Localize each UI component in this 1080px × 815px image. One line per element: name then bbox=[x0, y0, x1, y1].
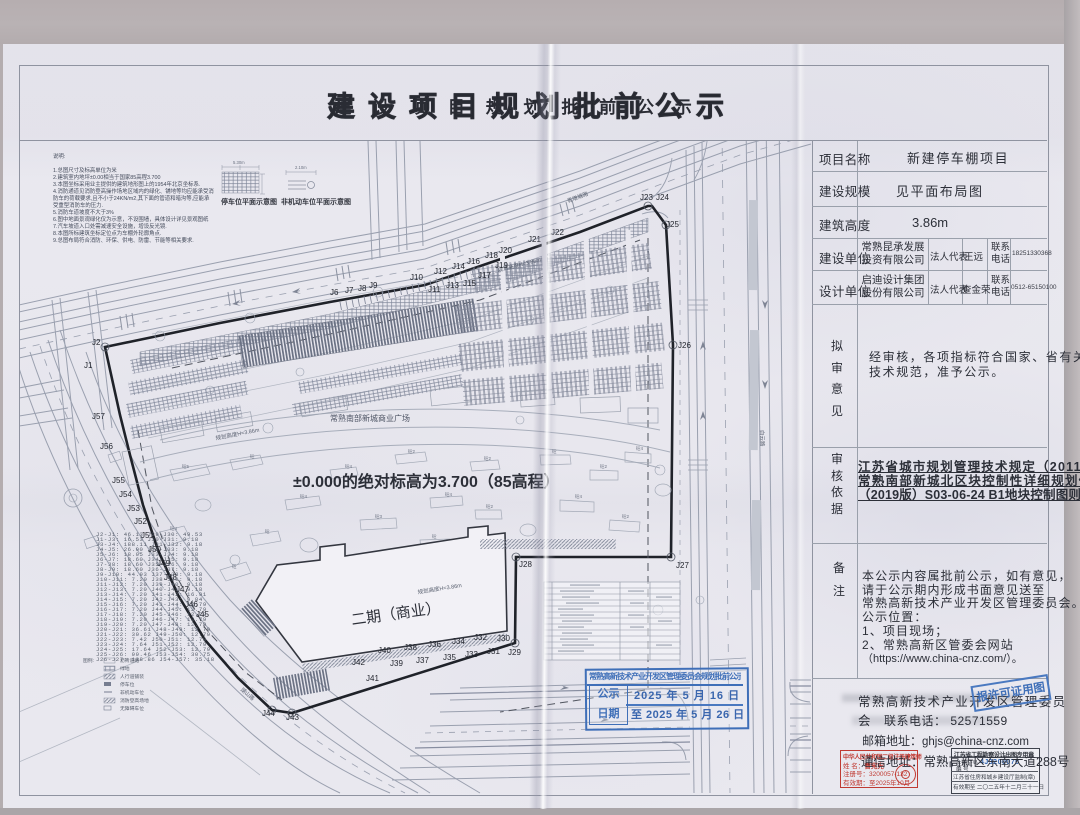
svg-text:J53: J53 bbox=[127, 504, 140, 513]
svg-text:J56: J56 bbox=[100, 442, 113, 451]
svg-text:5.消防车道坡度不大于3%: 5.消防车道坡度不大于3% bbox=[53, 208, 114, 216]
svg-text:1.总图尺寸及标高单位为米: 1.总图尺寸及标高单位为米 bbox=[53, 166, 117, 174]
svg-text:J54: J54 bbox=[119, 490, 132, 499]
svg-text:8.本图所标建筑坐标定位点为车棚外轮廓角点.: 8.本图所标建筑坐标定位点为车棚外轮廓角点. bbox=[53, 229, 161, 237]
svg-text:J14: J14 bbox=[452, 262, 465, 271]
svg-text:J35: J35 bbox=[443, 653, 456, 662]
svg-text:J20: J20 bbox=[499, 246, 512, 255]
svg-text:砼2: 砼2 bbox=[408, 448, 415, 454]
svg-text:J24: J24 bbox=[656, 193, 669, 202]
svg-text:J10: J10 bbox=[410, 273, 423, 282]
svg-text:J26-J27: 138.86 J54-J57: 35.18: J26-J27: 138.86 J54-J57: 35.18 bbox=[96, 656, 215, 663]
svg-text:J57: J57 bbox=[92, 412, 105, 421]
svg-text:砼: 砼 bbox=[232, 563, 237, 569]
svg-text:砼2: 砼2 bbox=[486, 503, 493, 509]
svg-text:J27: J27 bbox=[676, 561, 689, 570]
svg-text:J52: J52 bbox=[134, 517, 147, 526]
svg-text:砼4: 砼4 bbox=[445, 491, 452, 497]
svg-text:消防登高场地: 消防登高场地 bbox=[120, 697, 149, 704]
svg-text:砼2: 砼2 bbox=[484, 455, 491, 461]
svg-text:J31: J31 bbox=[487, 647, 500, 656]
svg-text:说明:: 说明: bbox=[53, 152, 65, 160]
svg-text:J30: J30 bbox=[497, 634, 510, 643]
svg-text:4.消防通道见消防登高操作场地区域内的绿化、铺地等均应能承受: 4.消防通道见消防登高操作场地区域内的绿化、铺地等均应能承受消 bbox=[53, 187, 214, 195]
svg-text:6.图中地面景观绿化仅为示意，不设围墙，具体设计详见景观图纸: 6.图中地面景观绿化仅为示意，不设围墙，具体设计详见景观图纸 bbox=[53, 215, 209, 223]
svg-text:5.30m: 5.30m bbox=[233, 160, 245, 165]
svg-text:无障碍车位: 无障碍车位 bbox=[120, 705, 144, 712]
svg-text:J44: J44 bbox=[262, 709, 275, 718]
svg-text:J42: J42 bbox=[352, 658, 365, 667]
svg-text:7.汽车坡道入口处需减速安全设施，增设反光镜.: 7.汽车坡道入口处需减速安全设施，增设反光镜. bbox=[53, 222, 167, 230]
svg-text:砼2: 砼2 bbox=[600, 463, 607, 469]
svg-text:9.总图布局符合消防、环保、供电、防雷、节能等相关要求.: 9.总图布局符合消防、环保、供电、防雷、节能等相关要求. bbox=[53, 236, 194, 244]
svg-text:非机动车位: 非机动车位 bbox=[120, 689, 144, 696]
svg-text:停车位: 停车位 bbox=[120, 681, 135, 688]
svg-text:J18: J18 bbox=[485, 251, 498, 260]
svg-text:砼4: 砼4 bbox=[575, 493, 582, 499]
svg-text:绿地: 绿地 bbox=[120, 665, 130, 672]
svg-text:人行道铺装: 人行道铺装 bbox=[120, 673, 144, 680]
svg-text:J33: J33 bbox=[465, 650, 478, 659]
svg-text:J19: J19 bbox=[495, 261, 508, 270]
svg-text:J41: J41 bbox=[366, 674, 379, 683]
svg-text:常熟南部新城商业广场: 常熟南部新城商业广场 bbox=[330, 413, 410, 423]
svg-text:图例:: 图例: bbox=[83, 657, 94, 664]
svg-text:±0.000的绝对标高为3.700（85高程）: ±0.000的绝对标高为3.700（85高程） bbox=[293, 472, 560, 491]
svg-text:J1: J1 bbox=[84, 361, 93, 370]
svg-text:砼4: 砼4 bbox=[345, 463, 352, 469]
svg-text:J23: J23 bbox=[640, 193, 653, 202]
svg-text:J11: J11 bbox=[428, 285, 441, 294]
svg-text:非机动车位平面示意图: 非机动车位平面示意图 bbox=[281, 197, 351, 206]
svg-text:J55: J55 bbox=[112, 476, 125, 485]
svg-text:3.本图坐标采用业主提供的建筑地形图上的1954年北京坐标系: 3.本图坐标采用业主提供的建筑地形图上的1954年北京坐标系. bbox=[53, 180, 200, 188]
svg-text:J2: J2 bbox=[92, 338, 101, 347]
svg-text:J36: J36 bbox=[428, 640, 441, 649]
svg-text:J17: J17 bbox=[478, 271, 491, 280]
svg-text:J13: J13 bbox=[446, 281, 459, 290]
svg-text:2.建筑室内地坪±0.00相当于国家85高程3.700: 2.建筑室内地坪±0.00相当于国家85高程3.700 bbox=[53, 173, 161, 181]
svg-text:砼3: 砼3 bbox=[375, 513, 382, 519]
svg-text:砼: 砼 bbox=[432, 533, 437, 539]
svg-text:J15: J15 bbox=[463, 279, 476, 288]
svg-text:J29: J29 bbox=[508, 648, 521, 657]
svg-text:J16: J16 bbox=[467, 257, 480, 266]
svg-text:J32: J32 bbox=[474, 633, 487, 642]
svg-text:J38: J38 bbox=[404, 643, 417, 652]
svg-text:J9: J9 bbox=[369, 281, 378, 290]
svg-text:J28: J28 bbox=[519, 560, 532, 569]
svg-text:J8: J8 bbox=[358, 284, 367, 293]
svg-text:防车的荷载要求,且不小于24KN/m2,其下面的管道和暗沟等: 防车的荷载要求,且不小于24KN/m2,其下面的管道和暗沟等,应能承 bbox=[53, 194, 210, 202]
svg-text:2.10m: 2.10m bbox=[295, 165, 307, 170]
svg-text:砼4: 砼4 bbox=[300, 493, 307, 499]
svg-text:白云路: 白云路 bbox=[758, 430, 767, 447]
svg-text:停车位平面示意图: 停车位平面示意图 bbox=[221, 197, 277, 206]
svg-text:J12: J12 bbox=[434, 267, 447, 276]
svg-text:J6: J6 bbox=[330, 288, 339, 297]
svg-text:J40: J40 bbox=[378, 646, 391, 655]
svg-text:J26: J26 bbox=[678, 341, 691, 350]
svg-text:J25: J25 bbox=[666, 220, 679, 229]
svg-text:砼: 砼 bbox=[250, 453, 255, 459]
svg-text:J7: J7 bbox=[345, 286, 354, 295]
svg-text:J43: J43 bbox=[286, 713, 299, 722]
svg-text:J37: J37 bbox=[416, 656, 429, 665]
svg-text:受重型消防车的压力.: 受重型消防车的压力. bbox=[53, 201, 103, 209]
svg-text:砼4: 砼4 bbox=[636, 445, 643, 451]
svg-text:砼: 砼 bbox=[265, 528, 270, 534]
svg-text:J39: J39 bbox=[390, 659, 403, 668]
svg-text:沥青道路: 沥青道路 bbox=[120, 657, 139, 664]
svg-text:砼2: 砼2 bbox=[622, 513, 629, 519]
svg-text:J34: J34 bbox=[452, 637, 465, 646]
svg-text:砼5: 砼5 bbox=[182, 463, 189, 469]
